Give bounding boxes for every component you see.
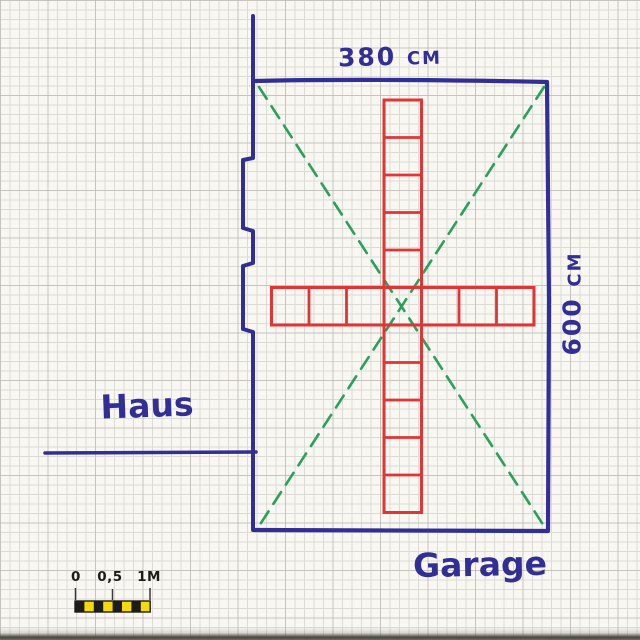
house-front-line [45,452,256,453]
scale-label-0: 0 [68,569,84,585]
garage-label: Garage [413,544,534,585]
scale-bar [75,588,150,612]
height-dimension-label: 600 cm [558,239,587,369]
paper-background: 380 cm 600 cm Haus Garage 0 0,5 1M [0,0,640,640]
width-dimension-label: 380 cm [330,40,451,72]
house-label: Haus [91,384,202,427]
scale-bar-ticks [76,588,151,600]
scale-label-0-5: 0,5 [96,569,124,585]
scale-label-1m: 1M [136,569,162,585]
photo-bottom-edge-shadow [0,627,640,640]
